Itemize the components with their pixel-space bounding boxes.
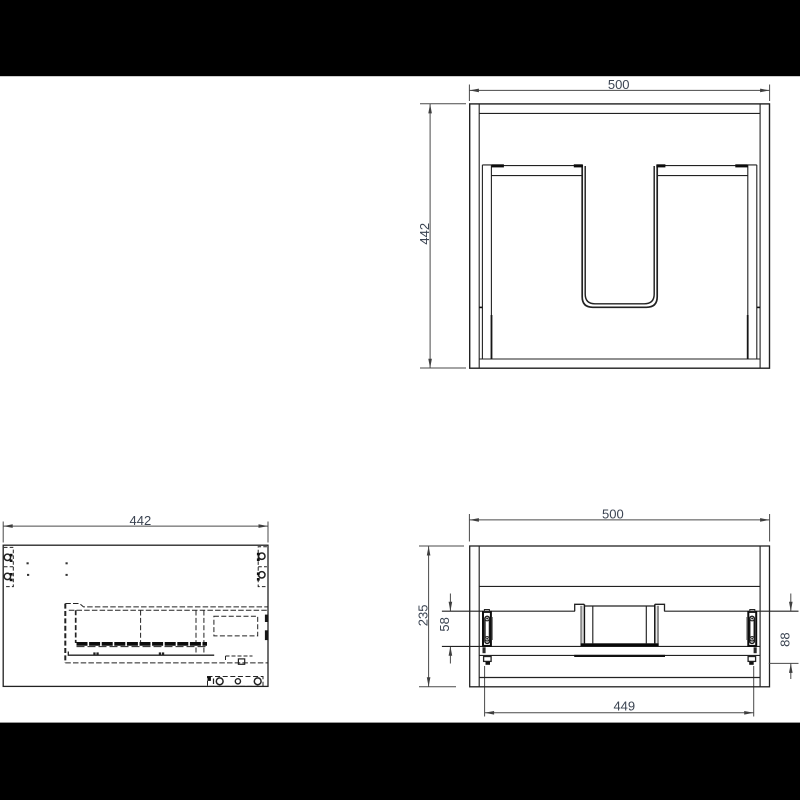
svg-text:442: 442 — [130, 513, 152, 528]
svg-text:442: 442 — [417, 223, 432, 245]
svg-text:235: 235 — [416, 605, 431, 627]
svg-text:449: 449 — [613, 699, 635, 714]
svg-text:500: 500 — [602, 507, 624, 522]
svg-text:500: 500 — [608, 77, 630, 92]
svg-text:88: 88 — [777, 632, 792, 646]
svg-text:58: 58 — [437, 617, 452, 631]
